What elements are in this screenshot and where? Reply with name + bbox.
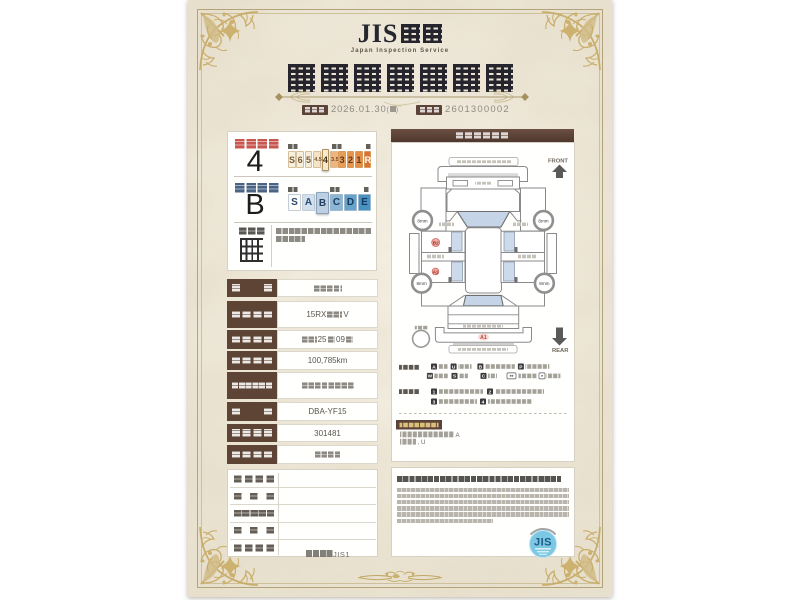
svg-text:A: A (432, 364, 436, 370)
svg-text:2: 2 (489, 389, 492, 395)
svg-text:, U: , U (418, 439, 426, 446)
svg-text:4: 4 (482, 399, 485, 405)
svg-text:A: A (456, 431, 461, 438)
svg-text:*: * (541, 374, 543, 380)
svg-text:8mm: 8mm (417, 218, 427, 223)
svg-text:REAR: REAR (552, 348, 569, 354)
svg-text:B: B (479, 364, 483, 370)
svg-text:**: ** (510, 374, 514, 380)
svg-text:JIS: JIS (534, 537, 552, 549)
svg-text:8mm: 8mm (539, 281, 549, 286)
svg-text:8mm: 8mm (538, 218, 548, 223)
svg-text:1: 1 (433, 389, 436, 395)
svg-text:B2: B2 (433, 240, 439, 245)
svg-text:A1: A1 (480, 335, 487, 341)
svg-text:FRONT: FRONT (548, 158, 568, 164)
svg-text:C: C (482, 373, 486, 379)
svg-text:8mm: 8mm (416, 281, 426, 286)
svg-text:W: W (428, 373, 433, 379)
svg-text:3: 3 (433, 399, 436, 405)
svg-text:A1: A1 (433, 269, 439, 274)
svg-text:U: U (452, 364, 456, 370)
